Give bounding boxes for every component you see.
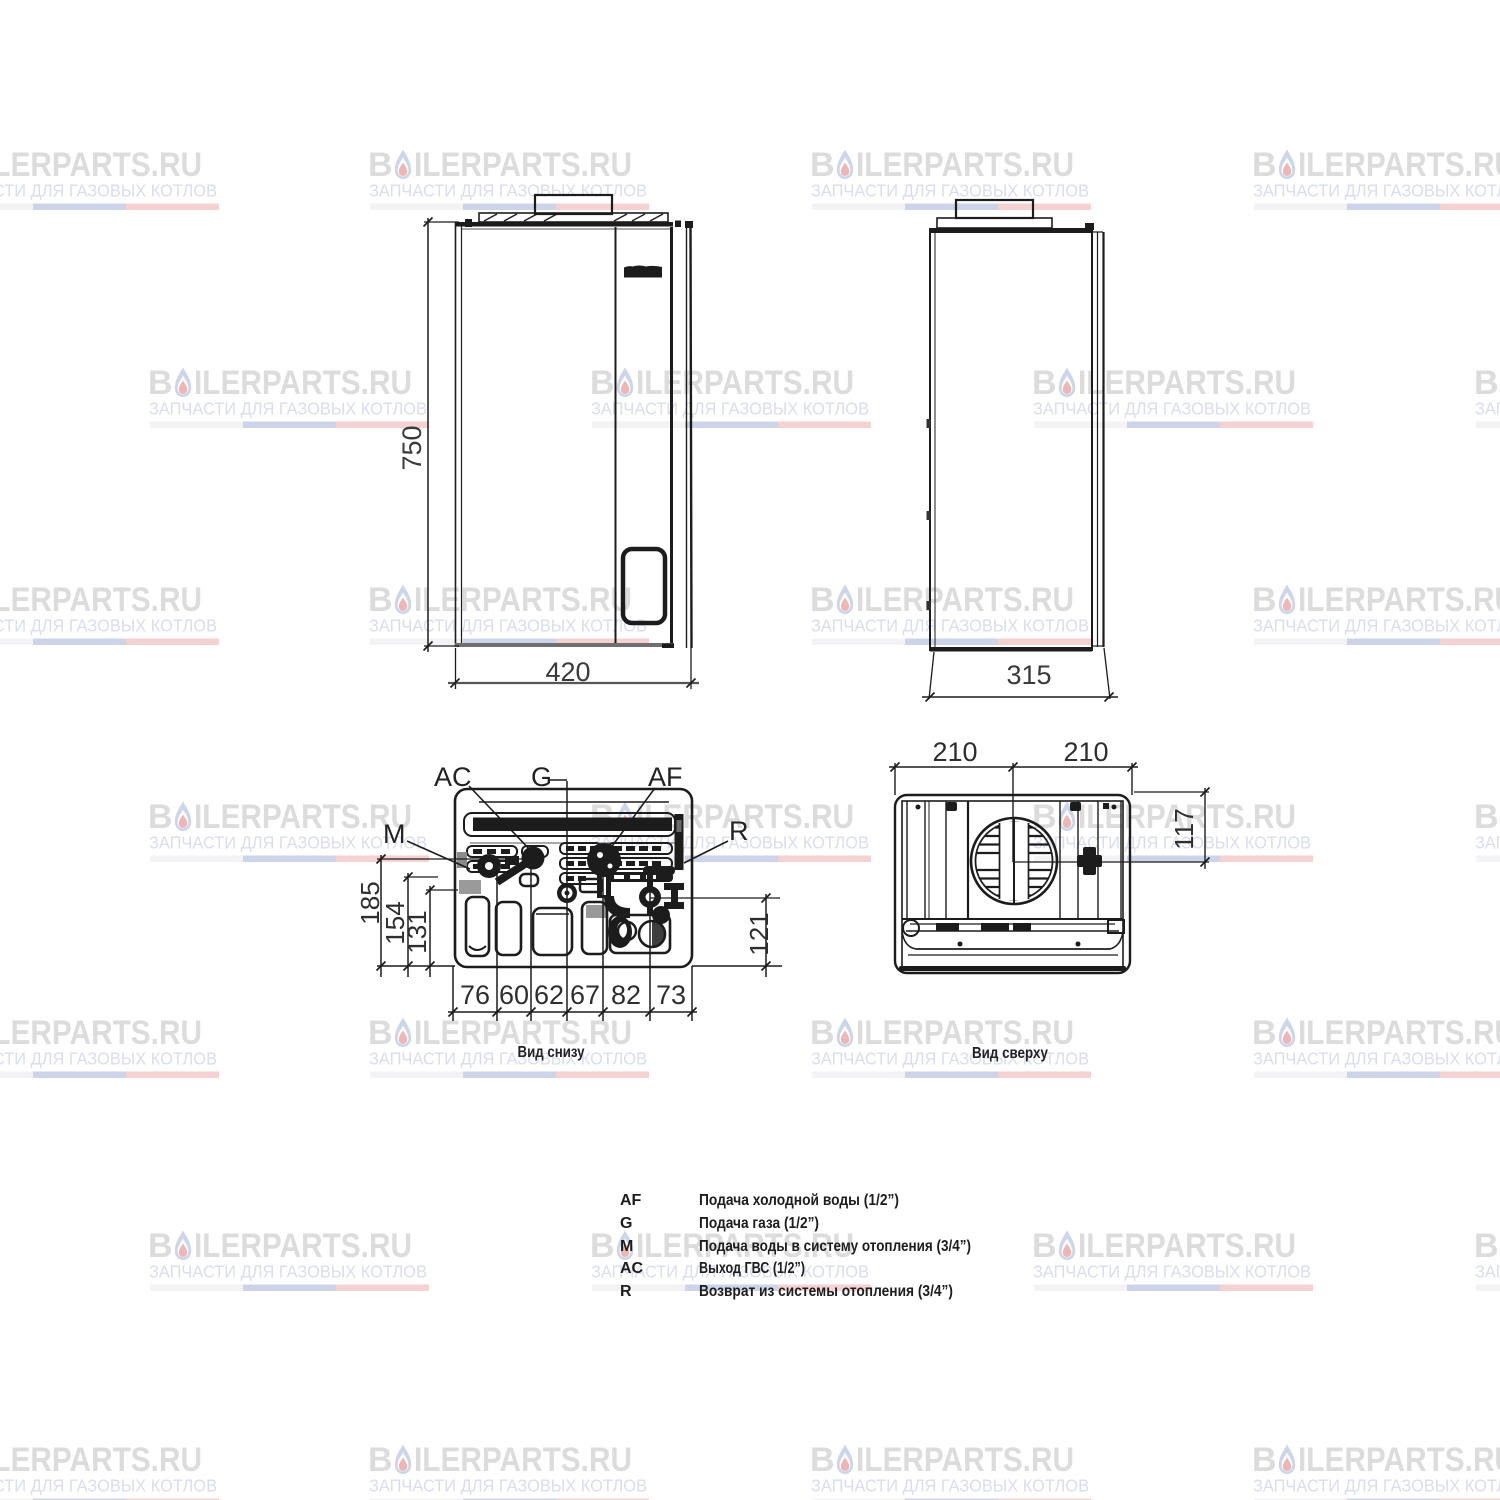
svg-text:210: 210 [932,737,977,767]
svg-text:Вид сверху: Вид сверху [972,1045,1048,1062]
svg-text:131: 131 [402,910,432,953]
svg-text:AF: AF [648,762,683,792]
svg-text:60: 60 [499,980,529,1010]
svg-text:67: 67 [570,980,600,1010]
svg-text:R: R [729,816,749,846]
svg-text:117: 117 [1169,808,1199,849]
svg-text:M: M [620,1238,633,1255]
svg-text:M: M [383,819,406,849]
svg-text:Подача воды в систему отоплени: Подача воды в систему отопления (3/4”) [699,1238,971,1255]
svg-text:G: G [531,762,552,792]
svg-text:73: 73 [656,980,686,1010]
svg-text:Вид снизу: Вид снизу [518,1044,585,1061]
svg-text:AC: AC [620,1260,644,1277]
svg-text:R: R [620,1283,632,1300]
svg-text:315: 315 [1006,660,1051,690]
svg-text:Подача холодной воды (1/2”): Подача холодной воды (1/2”) [699,1192,899,1209]
svg-text:121: 121 [744,912,774,955]
svg-text:Выход ГВС (1/2”): Выход ГВС (1/2”) [699,1260,805,1277]
svg-text:Возврат из системы отопления (: Возврат из системы отопления (3/4”) [699,1283,953,1300]
svg-text:Подача газа (1/2”): Подача газа (1/2”) [699,1215,819,1232]
svg-text:AC: AC [434,762,472,792]
svg-text:G: G [620,1215,632,1232]
svg-text:62: 62 [534,980,564,1010]
svg-text:82: 82 [611,980,641,1010]
svg-text:750: 750 [397,425,427,470]
svg-text:420: 420 [545,657,590,687]
svg-text:76: 76 [460,980,490,1010]
svg-text:AF: AF [620,1192,642,1209]
svg-text:210: 210 [1063,737,1108,767]
